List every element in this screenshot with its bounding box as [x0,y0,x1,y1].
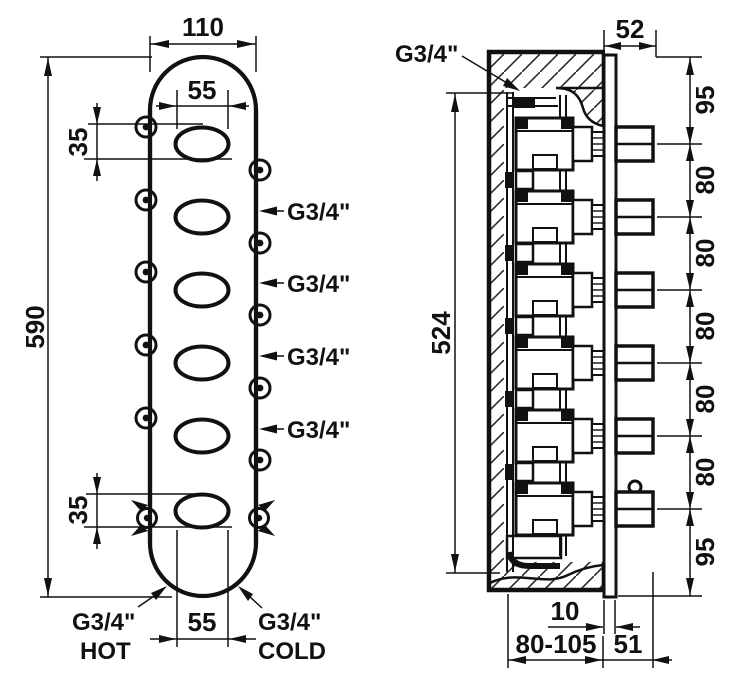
spacing-95-top: 95 [690,86,720,115]
cartridge-oval-4 [176,347,229,380]
port-label-3: G3/4" [287,344,350,371]
hot-label: HOT [80,638,131,665]
spacing-80-1: 80 [690,166,720,195]
dim-55-top-text: 55 [188,75,217,105]
dim-52: 52 [604,14,656,57]
cold-callout: G3/4" COLD [238,586,326,665]
cartridge-3 [516,264,604,316]
front-view: 110 55 35 590 [20,12,350,665]
dim-524-text: 524 [426,311,456,355]
port-label-2: G3/4" [287,271,350,298]
hot-size-label: G3/4" [72,609,135,636]
side-view: G3/4" 52 524 [395,14,720,668]
cartridge-oval-1 [176,128,229,161]
spacing-95-bottom: 95 [690,538,720,567]
port-callouts: G3/4" G3/4" G3/4" G3/4" [259,199,350,444]
port-label-1: G3/4" [287,199,350,226]
trim-plate [604,55,616,597]
handle-knobs [616,127,653,526]
dim-35-top-text: 35 [63,128,93,157]
cold-size-label: G3/4" [258,609,321,636]
port-label-4: G3/4" [287,417,350,444]
cartridge-2 [516,191,604,243]
dim-80-105-text: 80-105 [516,629,597,659]
spacing-80-3: 80 [690,312,720,341]
hot-callout: G3/4" HOT [72,586,167,665]
cartridge-5 [516,410,604,462]
spacing-80-2: 80 [690,239,720,268]
inlet-size-label: G3/4" [395,41,458,68]
dim-55-bottom-text: 55 [188,607,217,637]
technical-drawing: 110 55 35 590 [0,0,733,686]
dim-590-text: 590 [20,305,50,348]
cold-label: COLD [258,638,326,665]
spacing-80-4: 80 [690,385,720,414]
cartridge-oval-5 [176,420,229,453]
spacing-80-5: 80 [690,458,720,487]
dim-51-text: 51 [614,629,643,659]
cartridge-oval-2 [176,201,229,234]
dim-52-text: 52 [616,14,645,44]
bottom-outlet [507,536,561,558]
cartridge-4 [516,337,604,389]
cartridge-1 [516,118,604,170]
cartridge-6 [516,483,604,535]
dim-35-bottom-text: 35 [63,496,93,525]
dim-110-text: 110 [182,12,224,42]
cartridge-oval-6 [176,495,229,528]
cartridge-oval-3 [176,274,229,307]
dim-10-text: 10 [551,596,580,626]
